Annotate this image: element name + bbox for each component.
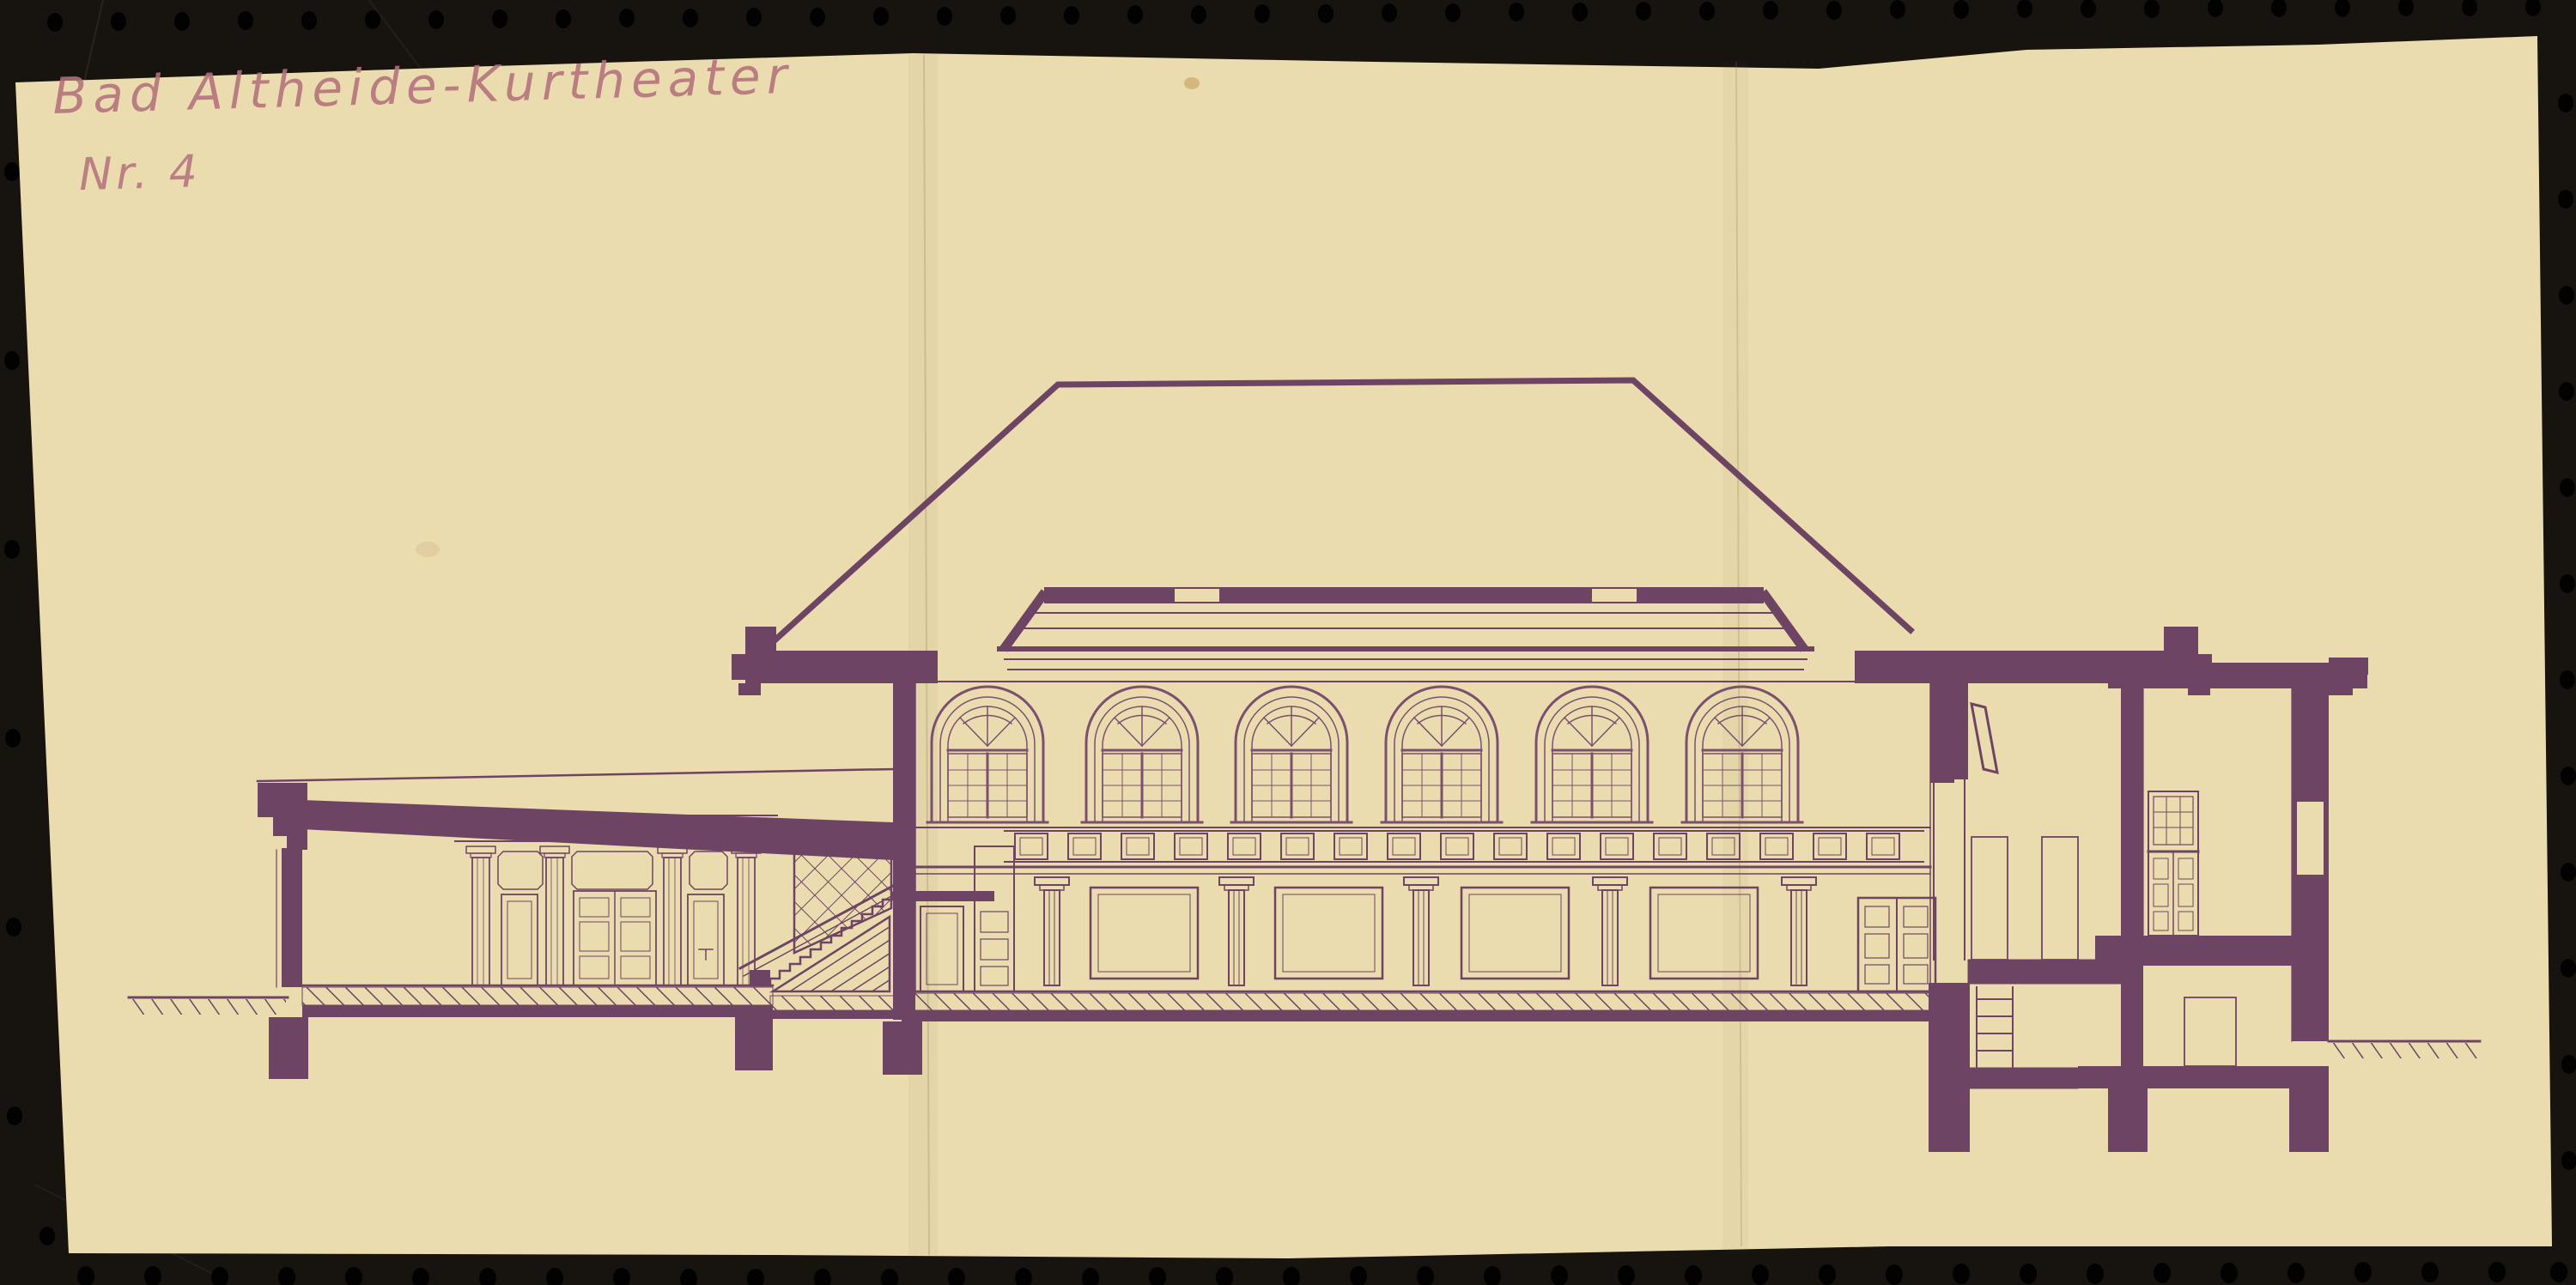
paper-stain xyxy=(1184,77,1200,89)
ground-line-right xyxy=(2329,1041,2480,1058)
paper-smudge xyxy=(416,542,440,557)
scanned-drawing-page: Bad Altheide-Kurtheater Nr. 4 xyxy=(0,0,2576,1285)
scan-canvas: Bad Altheide-Kurtheater Nr. 4 xyxy=(0,0,2576,1285)
rear-block-right-wall-window xyxy=(2297,802,2324,875)
drawing-number-handwriting: Nr. 4 xyxy=(78,146,201,201)
stage-basement-slab xyxy=(1932,1068,2078,1088)
rear-block-left-wall-lower xyxy=(2121,966,2143,1068)
fold-shading-right xyxy=(1722,60,1748,1253)
rear-block-basement-slab xyxy=(2078,1066,2329,1088)
ground-line-left xyxy=(129,997,288,1015)
rear-block-roof-slab xyxy=(2108,663,2367,688)
rear-block-left-wall-upper xyxy=(2121,687,2143,936)
floor-slabs xyxy=(302,985,1947,1021)
stair-newel-base xyxy=(750,970,770,985)
hall-left-wall-cut xyxy=(893,683,915,1020)
rear-block-floor-slab xyxy=(2095,936,2329,966)
annex-left-wall-cut xyxy=(282,848,302,987)
